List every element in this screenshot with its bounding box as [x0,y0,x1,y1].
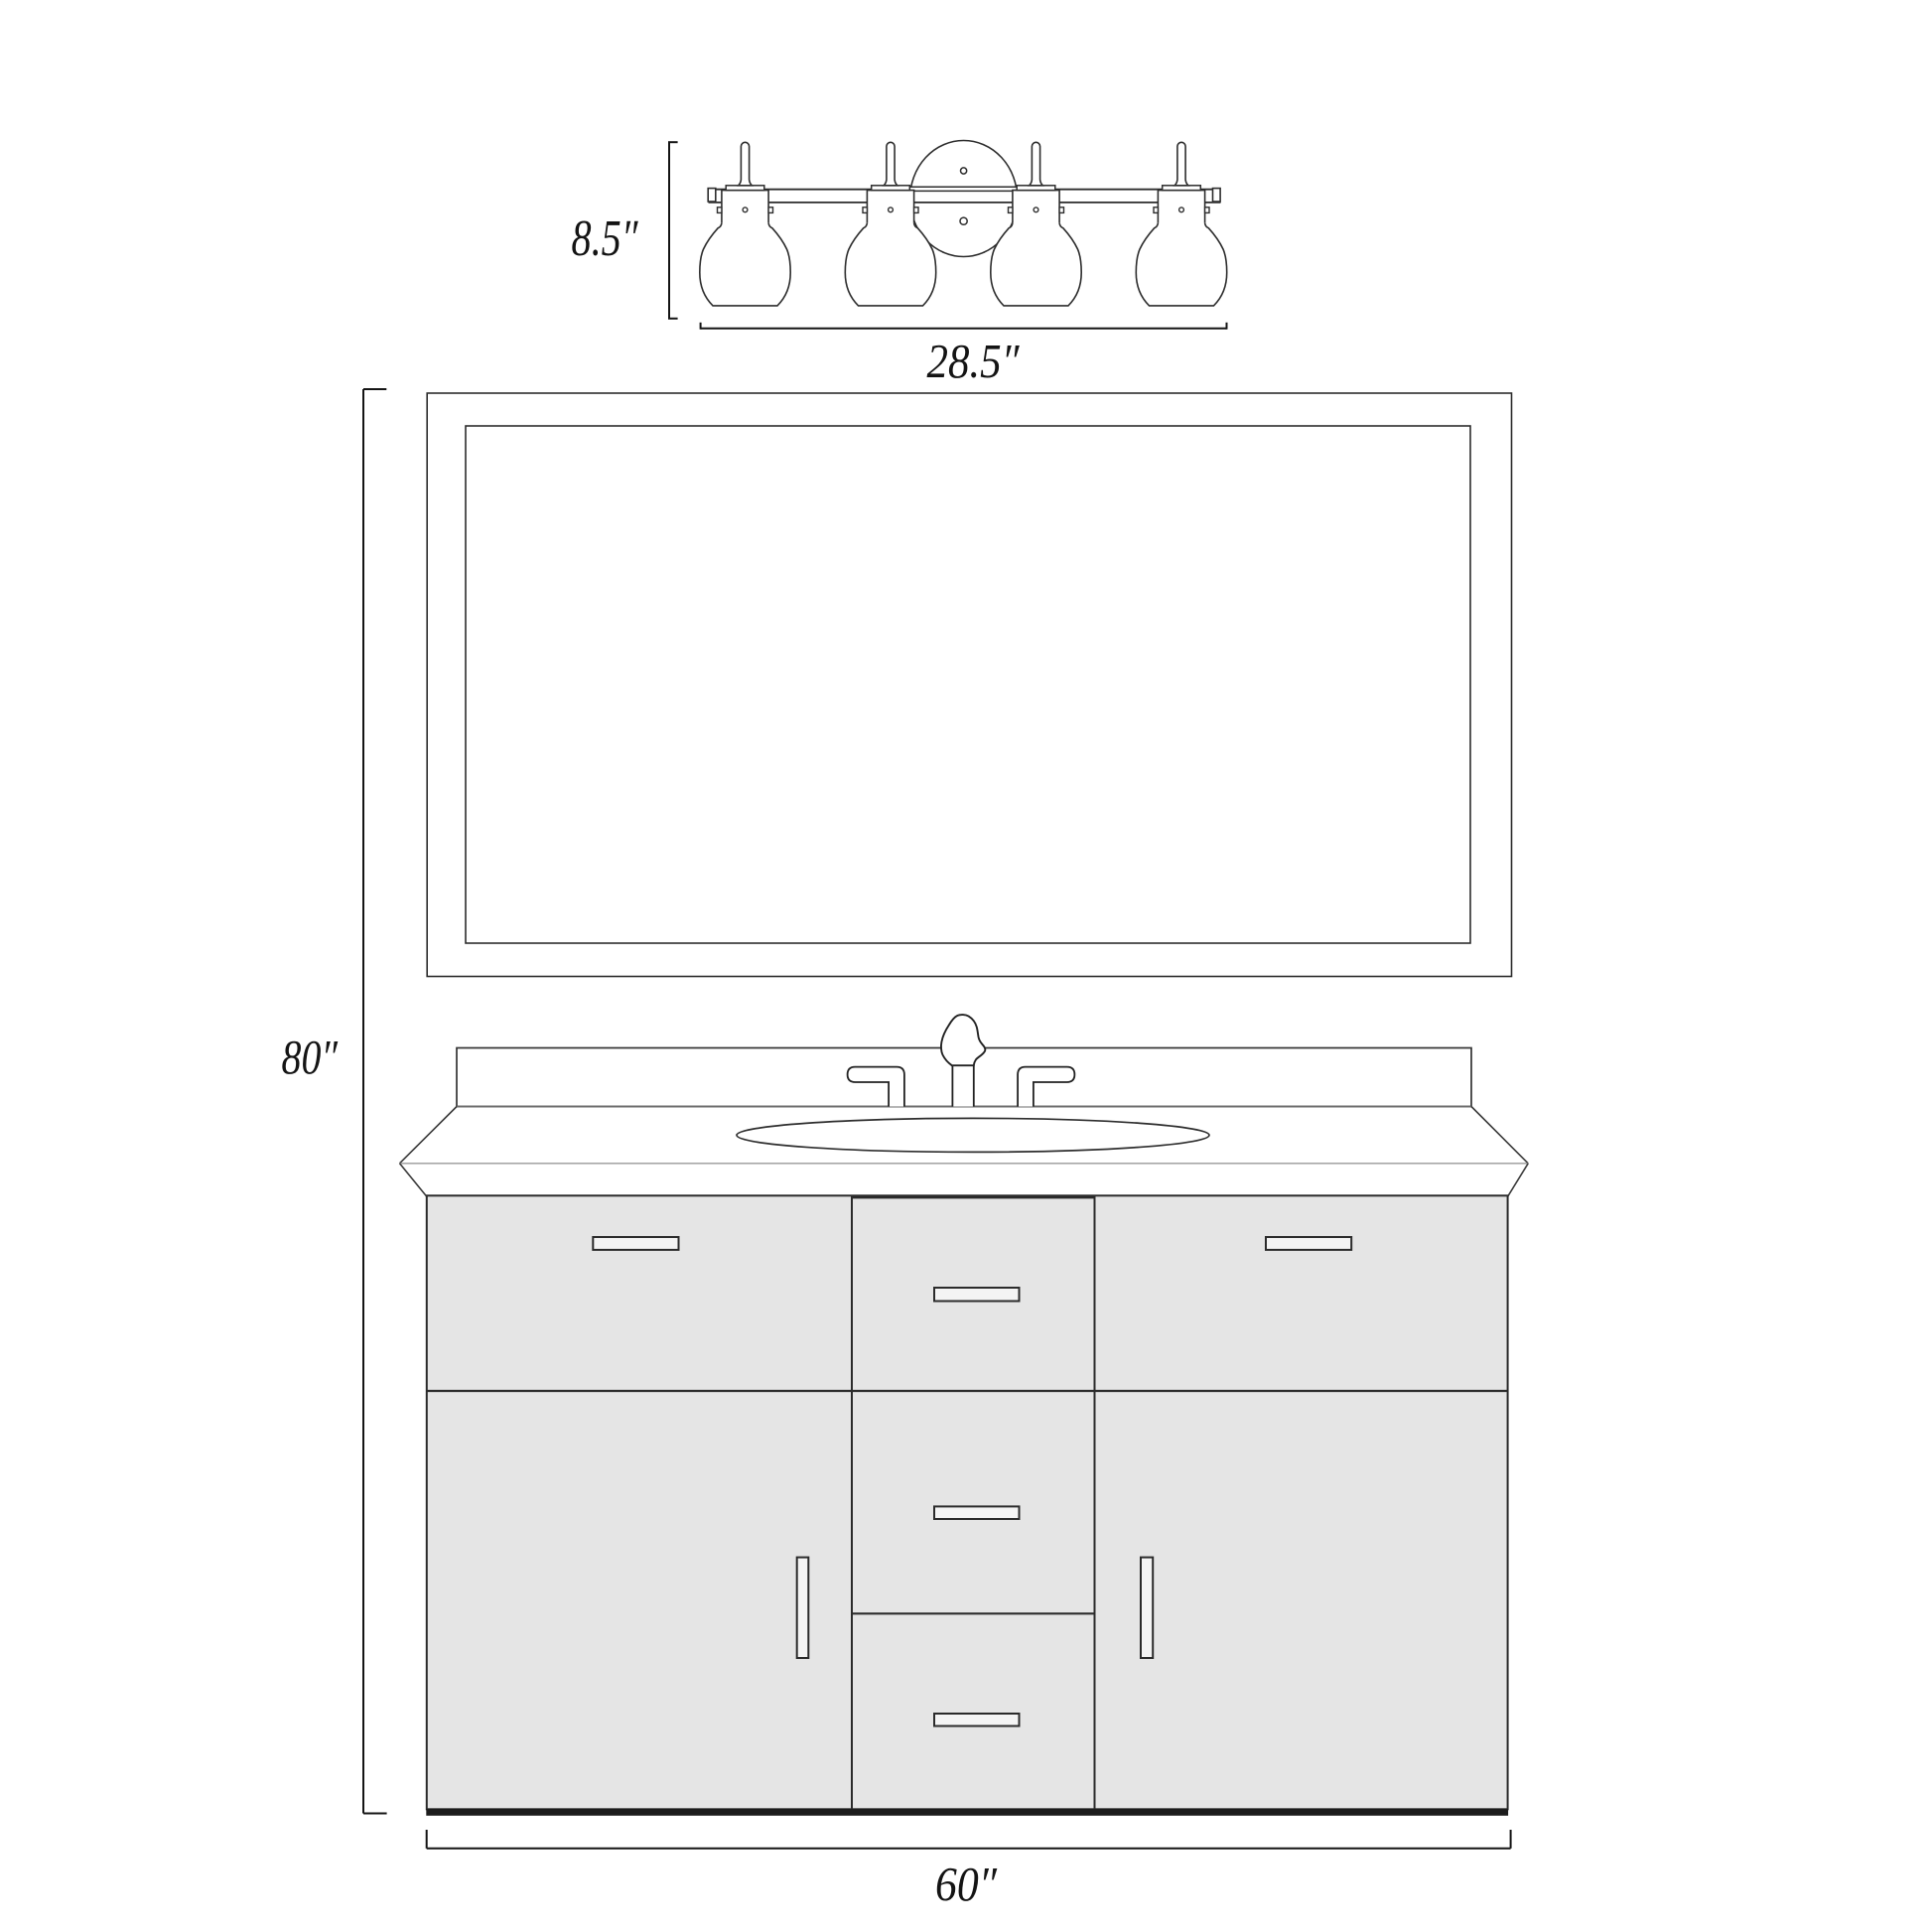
svg-text:60″: 60″ [935,1857,998,1911]
svg-text:28.5″: 28.5″ [927,334,1021,388]
svg-text:80″: 80″ [282,1030,339,1084]
svg-text:8.5″: 8.5″ [572,210,639,267]
